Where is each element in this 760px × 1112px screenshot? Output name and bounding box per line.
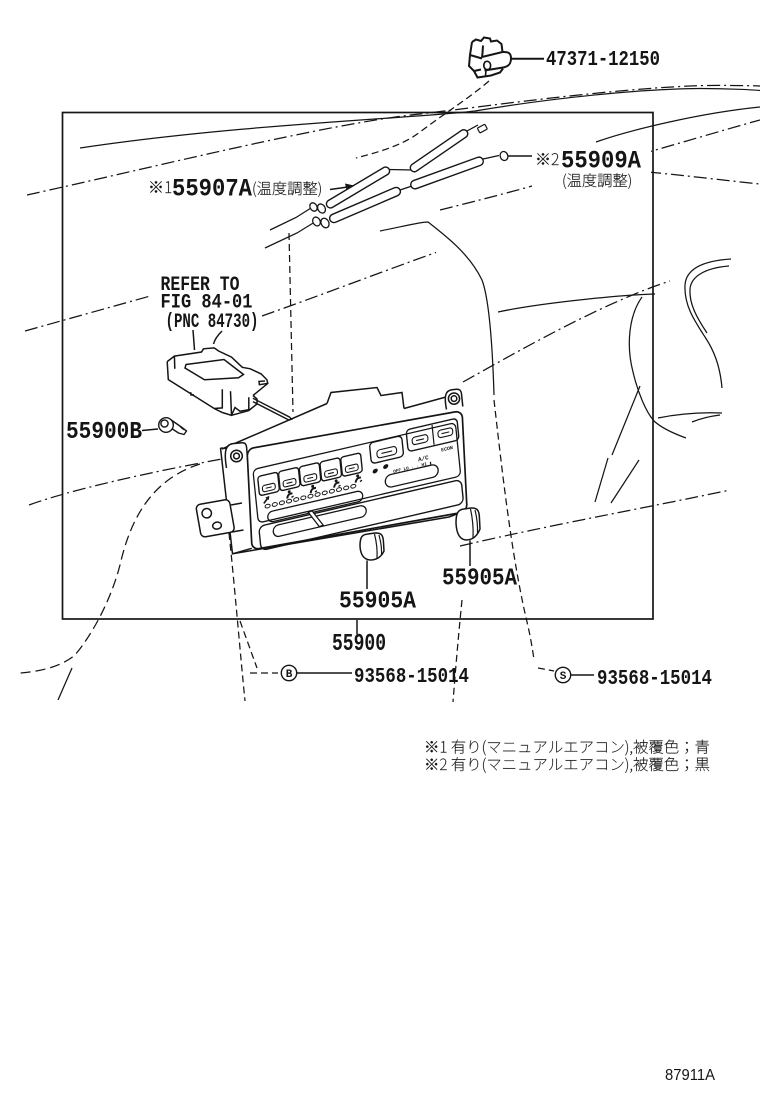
- svg-text:S: S: [560, 671, 567, 683]
- svg-text:47371-12150: 47371-12150: [546, 48, 660, 72]
- svg-text:93568-15014: 93568-15014: [354, 665, 469, 689]
- svg-text:(PNC 84730): (PNC 84730): [166, 311, 259, 334]
- svg-text:55900: 55900: [332, 631, 386, 658]
- svg-text:55900B: 55900B: [66, 419, 142, 446]
- svg-text:B: B: [286, 669, 293, 681]
- svg-text:55905A: 55905A: [339, 589, 416, 616]
- svg-text:55907A: 55907A: [172, 175, 252, 204]
- svg-text:55909A: 55909A: [561, 147, 641, 176]
- svg-text:93568-15014: 93568-15014: [597, 667, 712, 691]
- svg-text:87911A: 87911A: [665, 1067, 715, 1084]
- svg-text:55905A: 55905A: [442, 566, 517, 593]
